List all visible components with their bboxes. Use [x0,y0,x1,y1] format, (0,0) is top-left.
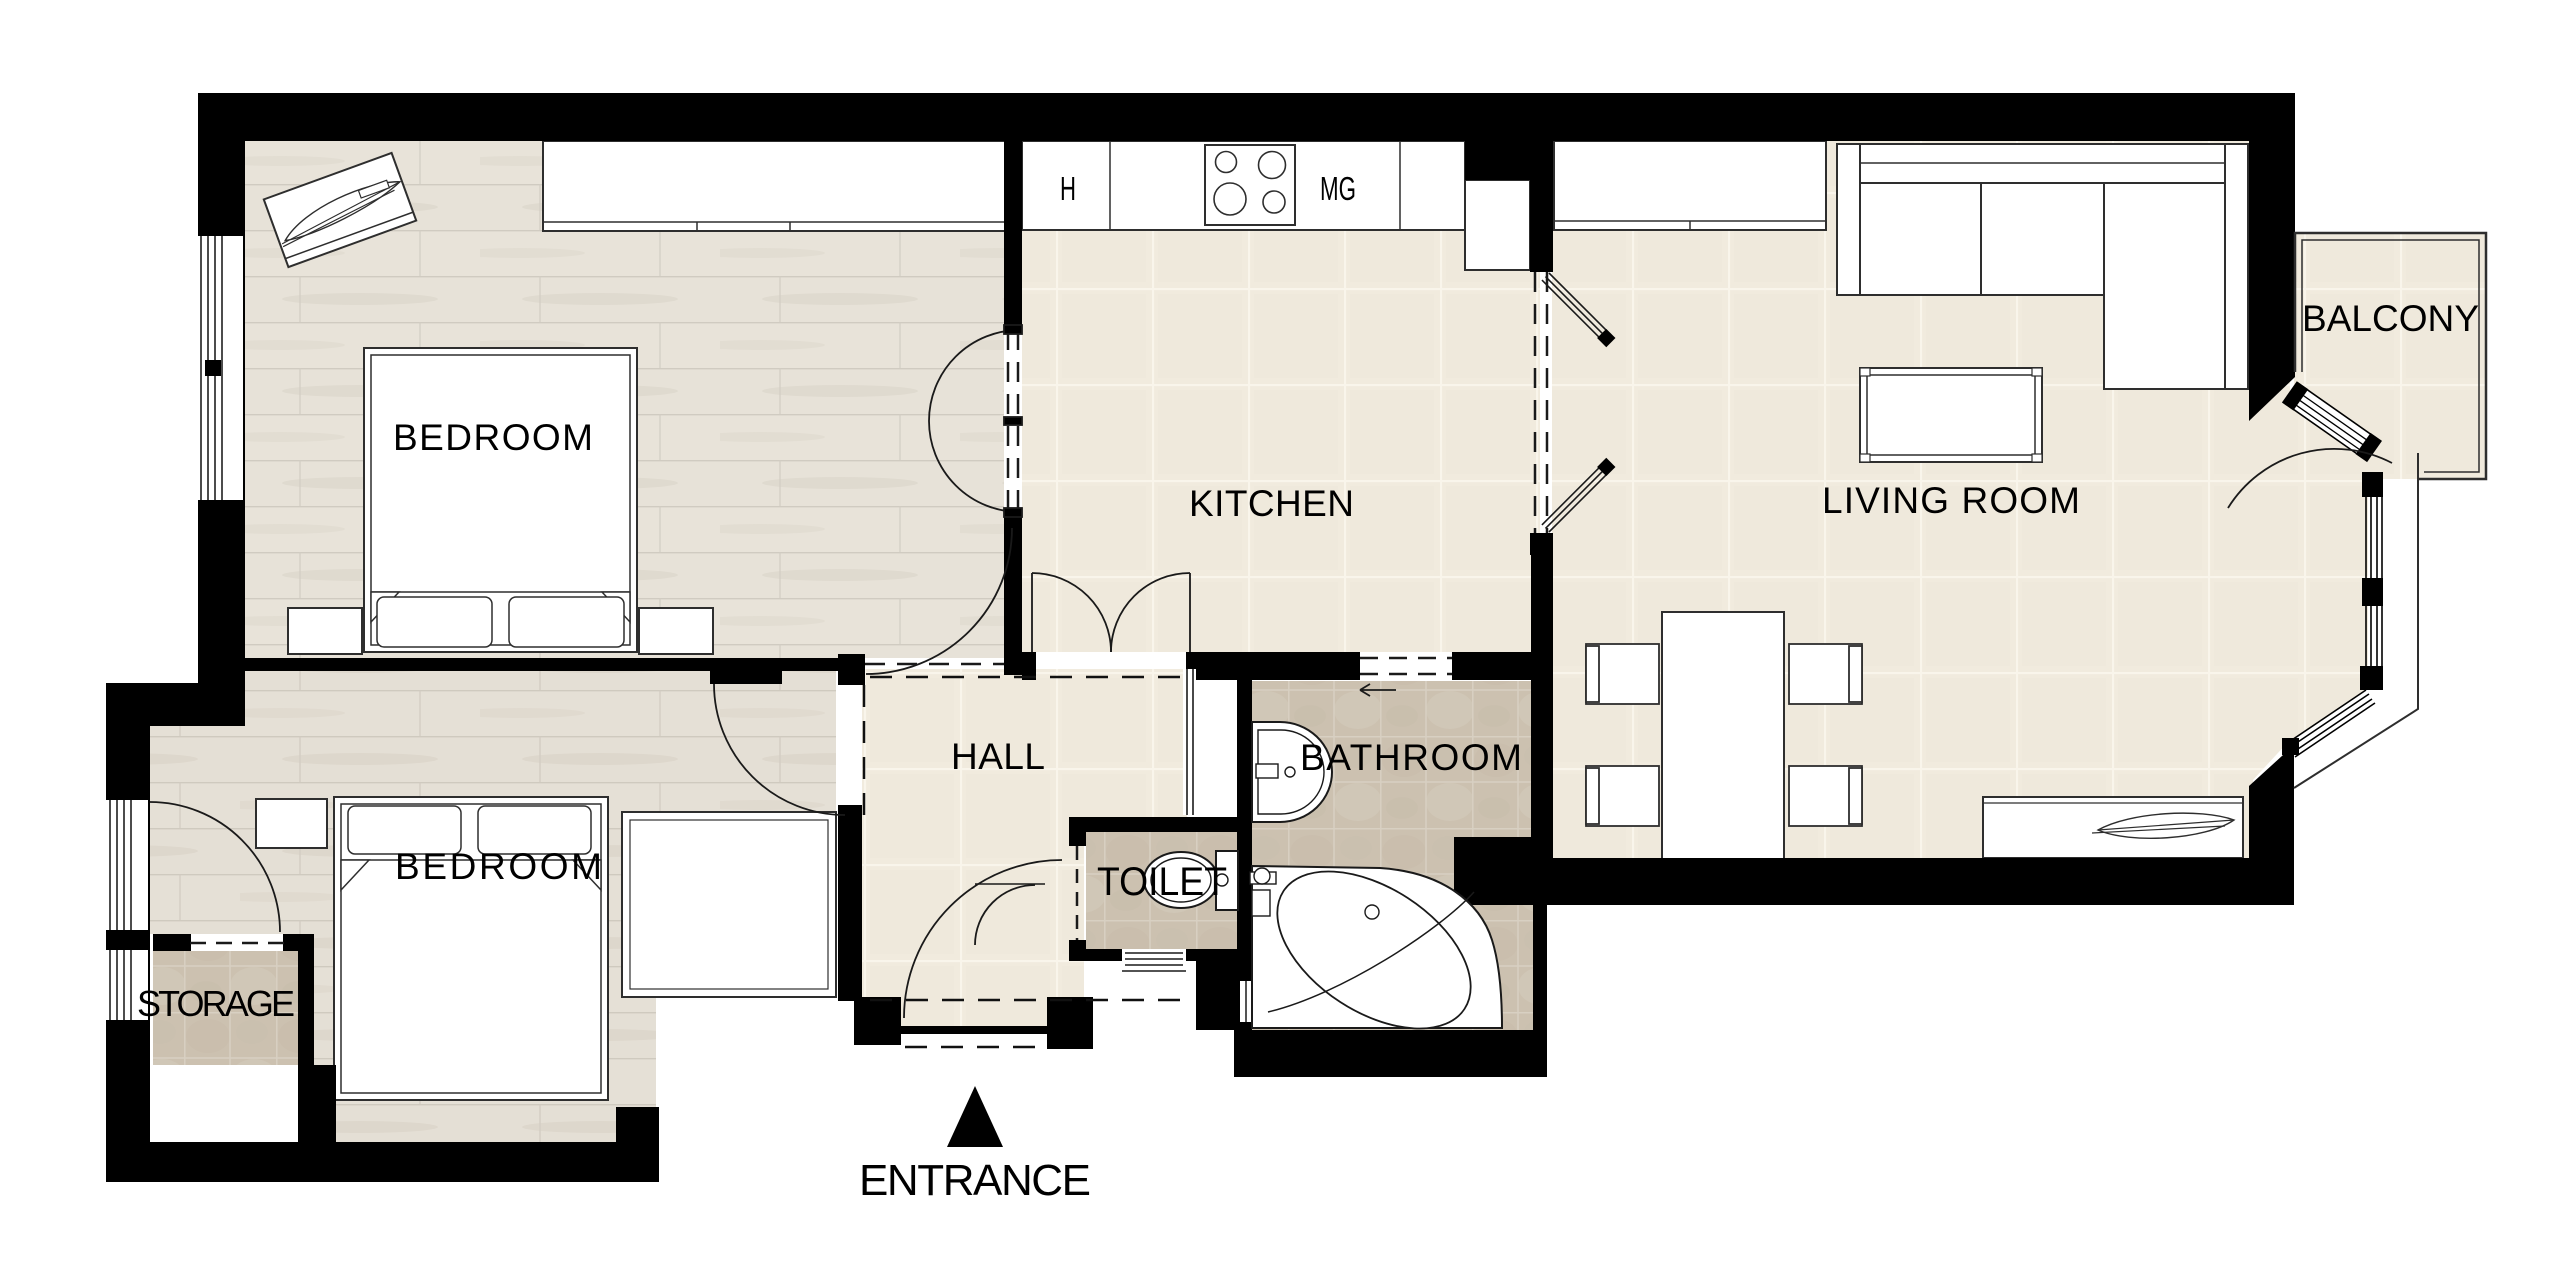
svg-text:LIVING ROOM: LIVING ROOM [1822,480,2080,521]
svg-text:BALCONY: BALCONY [2302,298,2479,339]
svg-text:BATHROOM: BATHROOM [1300,737,1522,778]
svg-text:HALL: HALL [951,736,1045,777]
svg-text:STORAGE: STORAGE [137,983,295,1024]
svg-text:H: H [1060,170,1076,207]
svg-text:TOILET: TOILET [1097,860,1227,904]
svg-text:BEDROOM: BEDROOM [395,846,602,887]
svg-text:MG: MG [1320,170,1356,207]
svg-text:BEDROOM: BEDROOM [393,417,593,458]
svg-text:ENTRANCE: ENTRANCE [859,1156,1091,1205]
svg-text:KITCHEN: KITCHEN [1189,483,1354,524]
